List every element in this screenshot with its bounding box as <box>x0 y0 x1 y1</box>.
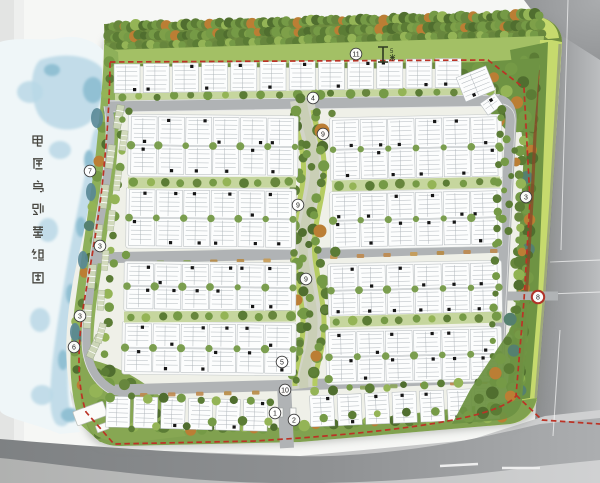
svg-text:6: 6 <box>72 344 76 351</box>
svg-text:9: 9 <box>304 276 308 283</box>
svg-text:2: 2 <box>292 417 296 424</box>
svg-text:8: 8 <box>536 294 540 301</box>
svg-text:3: 3 <box>98 243 102 250</box>
svg-text:7: 7 <box>88 168 92 175</box>
svg-text:10: 10 <box>281 387 289 394</box>
svg-text:9: 9 <box>321 131 325 138</box>
svg-text:5: 5 <box>280 359 284 366</box>
svg-text:1: 1 <box>273 410 277 417</box>
svg-text:9: 9 <box>296 202 300 209</box>
svg-text:4: 4 <box>311 95 315 102</box>
svg-text:3: 3 <box>524 194 528 201</box>
svg-text:11: 11 <box>352 51 359 58</box>
svg-text:3: 3 <box>78 313 82 320</box>
